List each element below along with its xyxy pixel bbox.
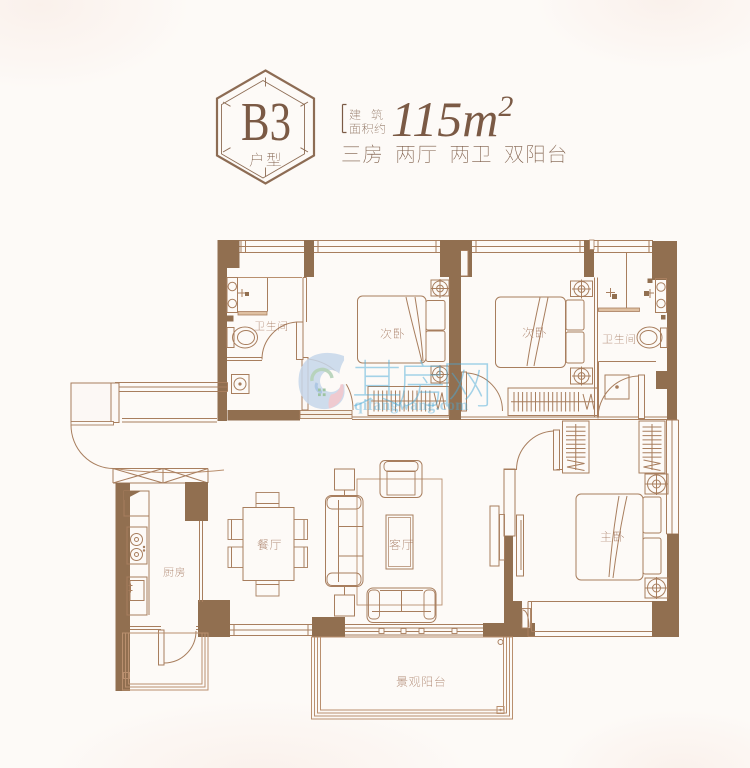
svg-text:115m2: 115m2 — [391, 90, 513, 147]
svg-text:B3: B3 — [241, 91, 291, 152]
svg-text:qifangwang.com: qifangwang.com — [354, 397, 469, 414]
